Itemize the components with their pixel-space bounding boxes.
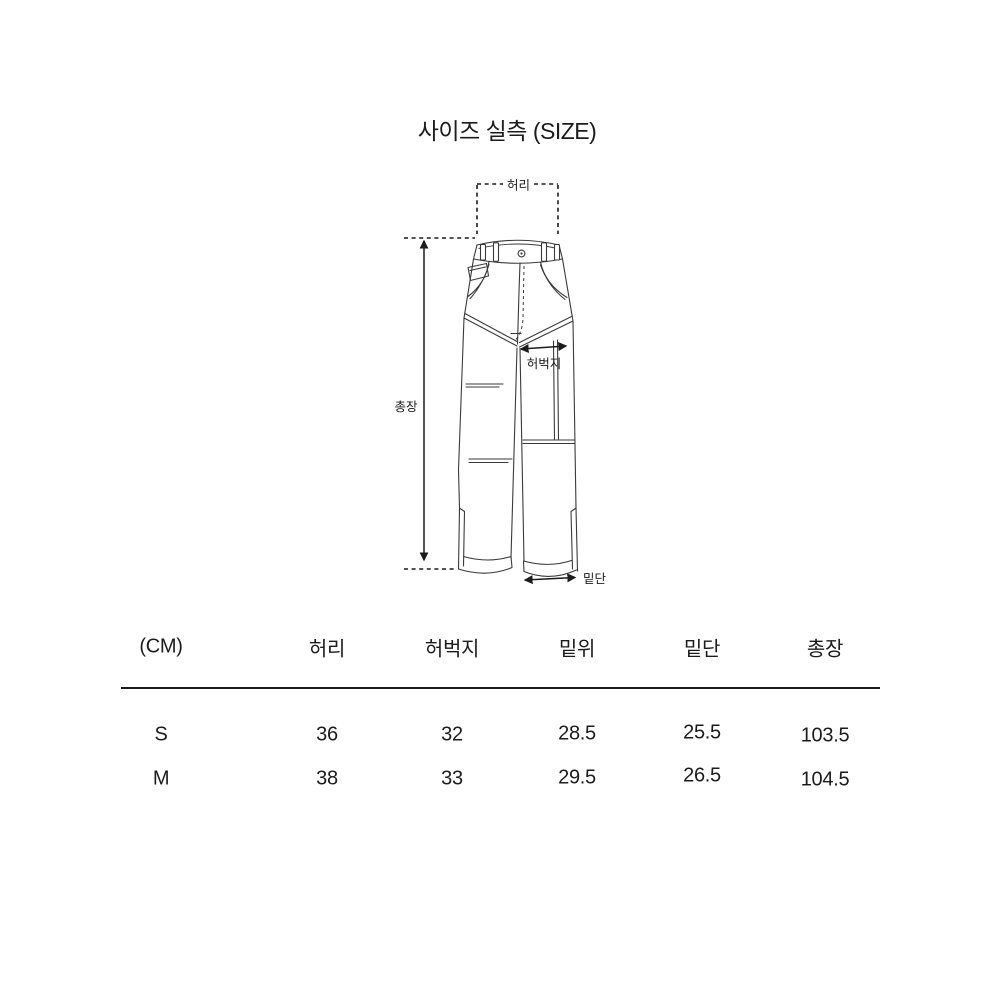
fly-stitch <box>511 263 524 344</box>
row-m-hem: 26.5 <box>683 765 721 788</box>
table-header-rise: 밑위 <box>559 633 595 662</box>
waist-label: 허리 <box>507 179 530 193</box>
row-m-size: M <box>153 768 169 791</box>
table-header-hem: 밑단 <box>684 633 720 662</box>
left-leg-seams <box>466 384 512 463</box>
thigh-dimension: 허벅지 <box>521 346 566 371</box>
hems <box>459 557 577 577</box>
belt-loop <box>542 243 547 261</box>
front-pockets <box>468 262 567 300</box>
table-header-unit: (CM) <box>139 636 182 659</box>
thigh-label: 허벅지 <box>527 357 562 371</box>
belt-loop <box>481 245 486 261</box>
row-m-waist: 38 <box>316 768 338 791</box>
right-leg-seams <box>523 340 575 444</box>
row-s-thigh: 32 <box>441 724 463 747</box>
table-header-length: 총장 <box>807 633 843 662</box>
total-length-dimension: 총장 <box>394 238 475 569</box>
pants-outline <box>459 240 578 576</box>
waist-dimension: 허리 <box>477 179 558 235</box>
row-s-length: 103.5 <box>801 725 850 748</box>
page-title: 사이즈 실측 (SIZE) <box>14 112 1000 146</box>
hem-label: 밑단 <box>583 572 607 586</box>
belt-loop <box>555 245 560 261</box>
row-s-waist: 36 <box>316 724 338 747</box>
row-s-rise: 28.5 <box>558 723 596 746</box>
table-divider <box>121 687 880 689</box>
row-m-thigh: 33 <box>441 768 463 791</box>
size-guide-page: 사이즈 실측 (SIZE) 허리 총장 <box>0 0 1000 1000</box>
waistband <box>474 240 563 263</box>
hem-slits <box>459 508 578 571</box>
row-s-size: S <box>154 724 167 747</box>
belt-loop <box>494 243 499 261</box>
row-m-length: 104.5 <box>801 769 850 792</box>
pants-measurement-diagram: 허리 총장 <box>385 168 625 598</box>
table-header-waist: 허리 <box>309 633 345 662</box>
total-length-label: 총장 <box>394 400 418 414</box>
row-s-hem: 25.5 <box>683 722 721 745</box>
row-m-rise: 29.5 <box>558 767 596 790</box>
table-header-thigh: 허벅지 <box>425 633 479 662</box>
